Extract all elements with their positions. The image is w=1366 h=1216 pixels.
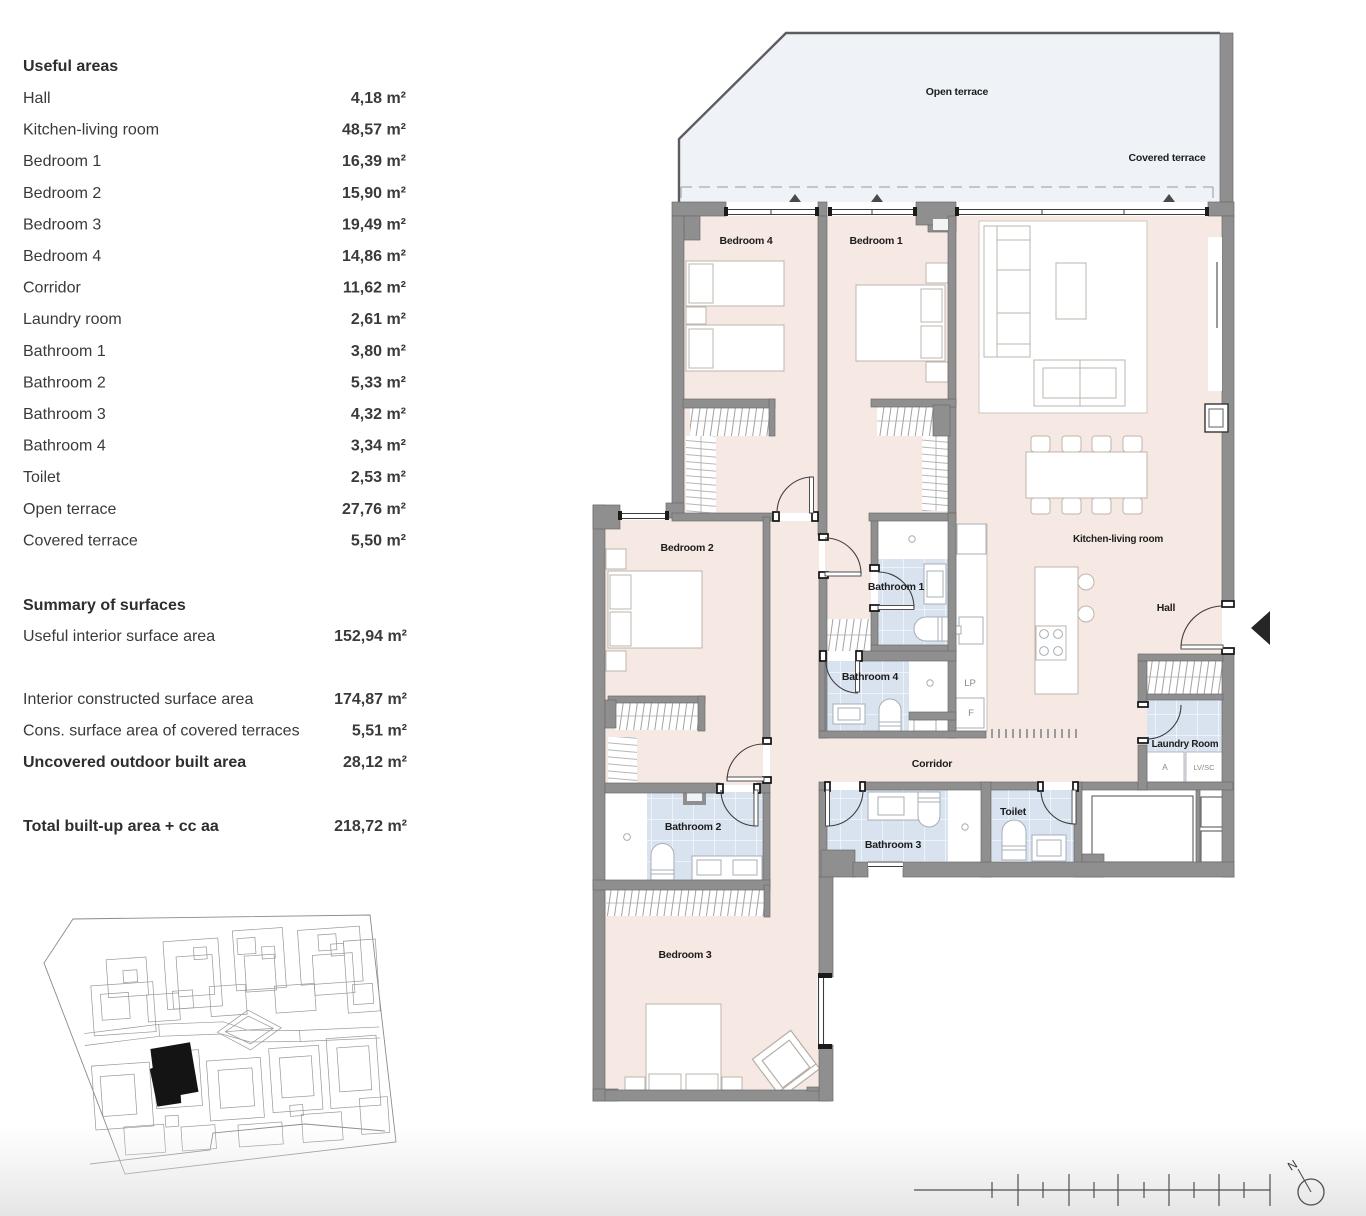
svg-text:5,50 m²: 5,50 m² bbox=[351, 532, 406, 549]
svg-text:27,76 m²: 27,76 m² bbox=[342, 501, 406, 518]
svg-text:Toilet: Toilet bbox=[1000, 806, 1027, 818]
svg-text:Bedroom 4: Bedroom 4 bbox=[719, 235, 772, 247]
svg-text:16,39 m²: 16,39 m² bbox=[342, 153, 406, 170]
svg-text:Bathroom 4: Bathroom 4 bbox=[23, 438, 106, 455]
svg-text:F: F bbox=[968, 708, 974, 719]
svg-text:Bedroom 3: Bedroom 3 bbox=[658, 949, 711, 961]
svg-text:174,87 m²: 174,87 m² bbox=[334, 691, 407, 708]
svg-text:11,62 m²: 11,62 m² bbox=[343, 280, 406, 297]
svg-text:2,53 m²: 2,53 m² bbox=[351, 469, 406, 486]
svg-text:Hall: Hall bbox=[23, 90, 51, 107]
svg-text:A: A bbox=[1162, 762, 1168, 772]
svg-text:28,12 m²: 28,12 m² bbox=[343, 754, 407, 771]
svg-text:LV/SC: LV/SC bbox=[1193, 763, 1215, 772]
svg-text:LP: LP bbox=[964, 678, 976, 689]
svg-text:Useful areas: Useful areas bbox=[23, 58, 118, 75]
svg-text:Bedroom 3: Bedroom 3 bbox=[23, 216, 101, 233]
svg-text:Interior constructed surface a: Interior constructed surface area bbox=[23, 691, 253, 708]
svg-text:Covered terrace: Covered terrace bbox=[23, 532, 138, 549]
svg-text:Hall: Hall bbox=[1157, 602, 1176, 614]
svg-text:2,61 m²: 2,61 m² bbox=[351, 311, 406, 328]
svg-text:Cons. surface area of covered: Cons. surface area of covered terraces bbox=[23, 723, 300, 740]
svg-text:14,86 m²: 14,86 m² bbox=[342, 248, 406, 265]
svg-text:Kitchen-living room: Kitchen-living room bbox=[23, 122, 159, 139]
svg-text:Bathroom 2: Bathroom 2 bbox=[23, 374, 106, 391]
svg-text:5,33 m²: 5,33 m² bbox=[351, 374, 406, 391]
svg-text:15,90 m²: 15,90 m² bbox=[342, 185, 406, 202]
svg-text:5,51 m²: 5,51 m² bbox=[352, 723, 407, 740]
svg-text:Bedroom 1: Bedroom 1 bbox=[23, 153, 101, 170]
svg-text:Open terrace: Open terrace bbox=[23, 501, 116, 518]
svg-text:Bathroom 2: Bathroom 2 bbox=[665, 821, 722, 833]
svg-text:152,94 m²: 152,94 m² bbox=[334, 628, 407, 645]
svg-text:Bathroom 1: Bathroom 1 bbox=[23, 343, 106, 360]
svg-text:218,72 m²: 218,72 m² bbox=[334, 818, 407, 835]
svg-text:Open terrace: Open terrace bbox=[926, 86, 989, 98]
svg-text:4,32 m²: 4,32 m² bbox=[351, 406, 406, 423]
svg-text:Toilet: Toilet bbox=[23, 469, 61, 486]
svg-text:Corridor: Corridor bbox=[912, 758, 953, 770]
svg-text:Bathroom 4: Bathroom 4 bbox=[842, 671, 899, 683]
svg-text:Bedroom 4: Bedroom 4 bbox=[23, 248, 101, 265]
svg-text:Bathroom 3: Bathroom 3 bbox=[23, 406, 106, 423]
svg-text:48,57 m²: 48,57 m² bbox=[342, 122, 406, 139]
svg-text:Uncovered outdoor built area: Uncovered outdoor built area bbox=[23, 754, 246, 771]
svg-text:Useful interior surface area: Useful interior surface area bbox=[23, 628, 215, 645]
svg-text:Summary of surfaces: Summary of surfaces bbox=[23, 597, 186, 614]
svg-text:Bedroom 2: Bedroom 2 bbox=[660, 542, 713, 554]
svg-text:Bathroom 1: Bathroom 1 bbox=[868, 581, 925, 593]
svg-text:Laundry room: Laundry room bbox=[23, 311, 122, 328]
svg-text:Covered terrace: Covered terrace bbox=[1129, 152, 1206, 164]
svg-text:Corridor: Corridor bbox=[23, 280, 81, 297]
svg-text:4,18 m²: 4,18 m² bbox=[351, 90, 406, 107]
svg-text:Kitchen-living room: Kitchen-living room bbox=[1073, 534, 1163, 545]
svg-text:Bedroom 2: Bedroom 2 bbox=[23, 185, 101, 202]
svg-text:Laundry Room: Laundry Room bbox=[1152, 739, 1219, 750]
svg-text:Total built-up area + cc aa: Total built-up area + cc aa bbox=[23, 818, 219, 835]
svg-text:19,49 m²: 19,49 m² bbox=[342, 216, 406, 233]
svg-text:Bathroom 3: Bathroom 3 bbox=[865, 839, 922, 851]
svg-text:3,34 m²: 3,34 m² bbox=[351, 438, 406, 455]
svg-text:Bedroom 1: Bedroom 1 bbox=[849, 235, 902, 247]
svg-text:3,80 m²: 3,80 m² bbox=[351, 343, 406, 360]
